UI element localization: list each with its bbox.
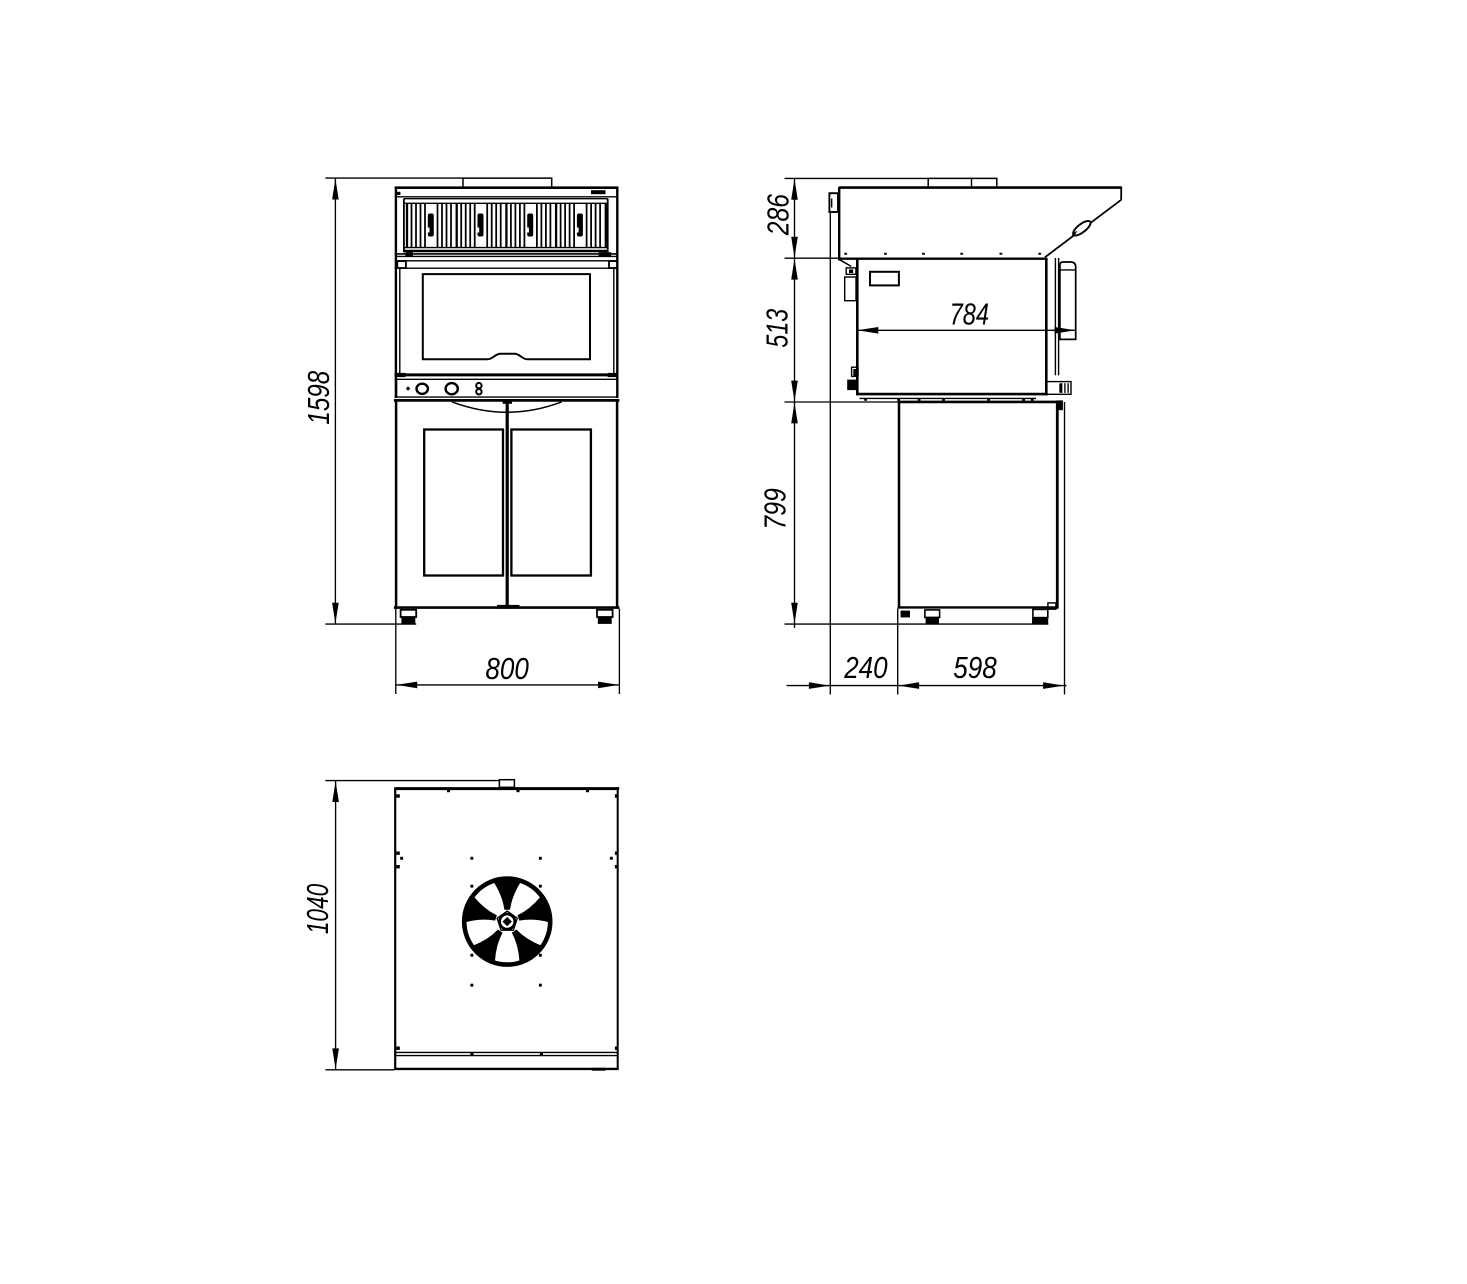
svg-text:1598: 1598	[301, 370, 336, 424]
svg-text:240: 240	[843, 651, 887, 686]
svg-text:513: 513	[759, 309, 794, 348]
svg-text:598: 598	[953, 651, 996, 686]
svg-text:1040: 1040	[299, 884, 334, 934]
svg-text:800: 800	[485, 652, 528, 687]
svg-text:286: 286	[761, 194, 795, 237]
svg-text:799: 799	[758, 488, 792, 530]
svg-text:784: 784	[950, 297, 989, 332]
